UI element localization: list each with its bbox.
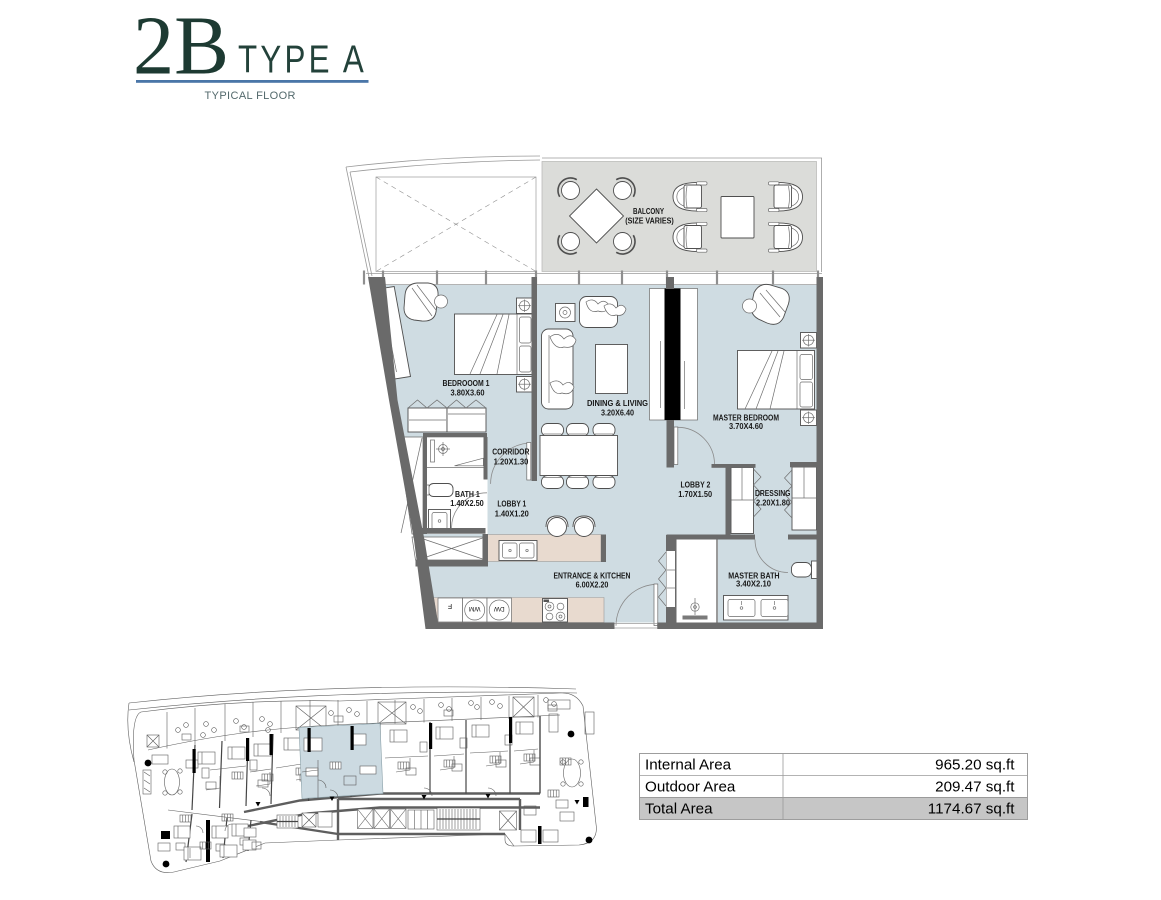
svg-text:3.40X2.10: 3.40X2.10 — [736, 580, 772, 589]
svg-text:Internal Area: Internal Area — [645, 757, 732, 774]
svg-text:1.40X1.20: 1.40X1.20 — [495, 509, 530, 518]
svg-text:TYPICAL FLOOR: TYPICAL FLOOR — [205, 90, 298, 102]
svg-text:3.20X6.40: 3.20X6.40 — [601, 409, 634, 418]
svg-text:Outdoor Area: Outdoor Area — [645, 779, 736, 796]
svg-text:2.20X1.80: 2.20X1.80 — [756, 499, 791, 508]
svg-text:BATH 1: BATH 1 — [455, 490, 480, 499]
svg-text:(SIZE VARIES): (SIZE VARIES) — [625, 216, 674, 225]
svg-text:F: F — [448, 602, 452, 609]
svg-text:1.40X2.50: 1.40X2.50 — [450, 499, 484, 508]
svg-text:DINING & LIVING: DINING & LIVING — [587, 399, 648, 408]
svg-text:6.00X2.20: 6.00X2.20 — [576, 581, 609, 590]
svg-text:1.70X1.50: 1.70X1.50 — [678, 490, 712, 499]
svg-text:LOBBY 2: LOBBY 2 — [680, 480, 710, 489]
svg-text:Total Area: Total Area — [645, 801, 713, 818]
svg-text:BALCONY: BALCONY — [633, 207, 665, 216]
svg-text:ENTRANCE & KITCHEN: ENTRANCE & KITCHEN — [554, 571, 631, 580]
svg-text:MASTER BEDROOM: MASTER BEDROOM — [713, 413, 779, 422]
svg-text:BEDROOOM 1: BEDROOOM 1 — [443, 379, 490, 388]
svg-text:DW: DW — [493, 605, 505, 612]
svg-text:3.70X4.60: 3.70X4.60 — [729, 422, 764, 431]
svg-text:2B: 2B — [133, 0, 229, 93]
svg-text:TYPE A: TYPE A — [238, 39, 367, 82]
svg-text:965.20 sq.ft: 965.20 sq.ft — [935, 757, 1015, 774]
svg-text:3.80X3.60: 3.80X3.60 — [451, 389, 486, 398]
svg-text:1174.67 sq.ft: 1174.67 sq.ft — [928, 801, 1015, 818]
svg-text:DRESSING: DRESSING — [755, 489, 791, 498]
svg-text:LOBBY 1: LOBBY 1 — [497, 500, 526, 509]
svg-text:209.47 sq.ft: 209.47 sq.ft — [935, 779, 1015, 796]
svg-text:1.20X1.30: 1.20X1.30 — [494, 457, 529, 466]
svg-text:CORRIDOR: CORRIDOR — [492, 448, 529, 457]
svg-text:WM: WM — [469, 605, 481, 612]
